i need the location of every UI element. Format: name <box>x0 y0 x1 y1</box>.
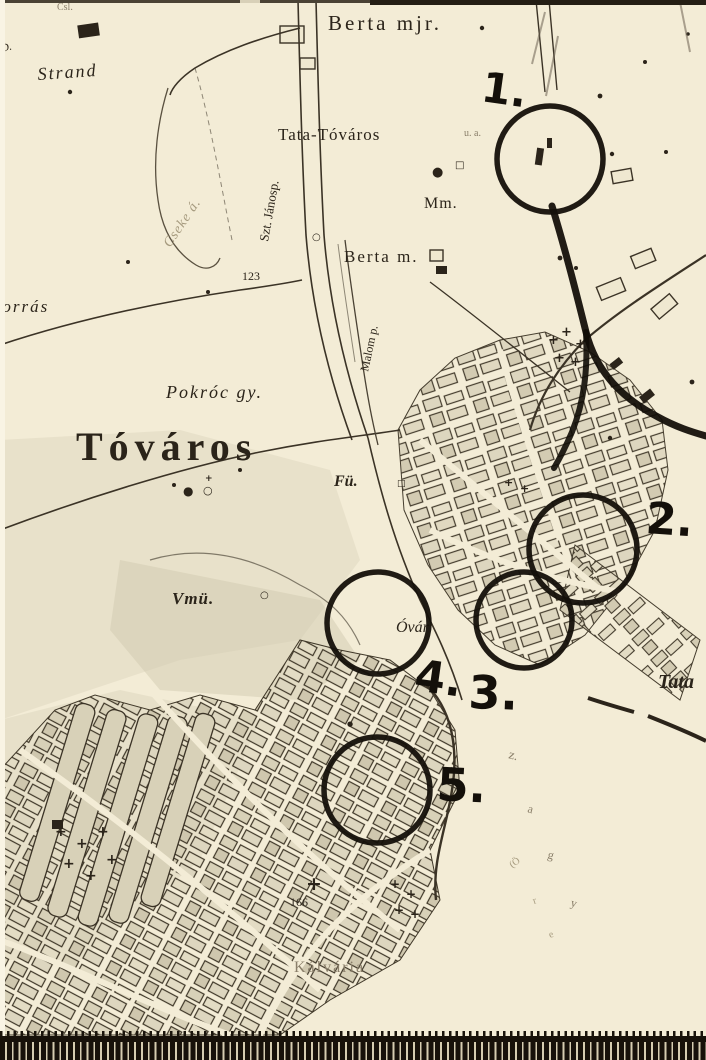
label-tata-tovaros: Tata-Tóváros <box>278 125 380 144</box>
grave-cross-symbol: + <box>63 856 75 872</box>
label-pokroc: Pokróc gy. <box>165 382 263 402</box>
calvary-cross-symbol: + <box>306 873 322 895</box>
marker-number-2: 2. <box>644 493 695 547</box>
marker-circle-1 <box>497 106 603 212</box>
grave-cross-symbol: + <box>390 877 400 891</box>
photo-edge <box>0 0 5 1060</box>
grave-cross-symbol: + <box>76 836 88 852</box>
building-dot-symbol: ● <box>347 720 353 728</box>
photo-scale-ruler <box>0 1036 706 1060</box>
grave-cross-symbol: + <box>570 355 581 370</box>
grave-cross-symbol: + <box>410 907 420 921</box>
photo-top-edge <box>0 0 706 5</box>
marker-number-4: 4. <box>411 650 465 707</box>
label-pu: u. a. <box>464 128 481 139</box>
label-hw-e: e <box>547 929 555 941</box>
label-tovaros: Tóváros <box>76 424 257 469</box>
grave-cross-symbol: + <box>520 482 529 495</box>
grave-cross-symbol: + <box>554 351 565 366</box>
label-hw-a: a <box>526 801 535 816</box>
label-kalvaria: Kálvária <box>294 959 365 976</box>
label-ovar: Óvár <box>396 617 430 636</box>
chapel-ring-symbol: ○ <box>260 590 269 601</box>
grave-cross-symbol: + <box>548 333 559 348</box>
mill-dot-symbol: ● <box>432 165 443 180</box>
label-csl: Csl. <box>57 2 73 13</box>
label-hw-z: z. <box>507 746 520 763</box>
label-hw-oreg: (Ö <box>507 855 523 871</box>
label-forras: Forrás <box>0 297 49 316</box>
grave-cross-symbol: + <box>205 474 213 484</box>
label-berta-m: Berta m. <box>344 247 419 266</box>
label-cseke: Cseke á. <box>161 196 204 250</box>
label-hw-y: y <box>569 895 578 910</box>
grave-cross-symbol: + <box>406 887 416 901</box>
label-hw-g: g <box>546 847 555 862</box>
grave-cross-symbol: + <box>561 325 572 340</box>
grave-cross-symbol: + <box>575 337 586 352</box>
grave-cross-symbol: + <box>106 852 118 868</box>
label-vmu: Vmü. <box>172 589 214 608</box>
grave-cross-symbol: + <box>504 476 513 489</box>
label-szt-janos: Szt. Jánosp. <box>256 179 281 242</box>
marker-number-5: 5. <box>435 757 487 814</box>
grave-cross-symbol: + <box>55 824 67 840</box>
label-e166: 166 <box>290 895 308 909</box>
label-berta-mjr: Berta mjr. <box>328 11 442 35</box>
map-image: Csl.D.StrandBerta mjr.Tata-Tóvárosu. a.M… <box>0 0 706 1060</box>
chapel-ring-symbol: ○ <box>312 232 321 243</box>
building-square-symbol: □ <box>397 479 406 489</box>
label-e123: 123 <box>242 269 260 283</box>
marker-number-1: 1. <box>479 62 531 117</box>
label-tata: Tata <box>658 671 694 693</box>
building-square-symbol: □ <box>455 160 464 171</box>
marker-number-3: 3. <box>468 665 519 721</box>
grave-cross-symbol: + <box>97 824 109 840</box>
grave-cross-symbol: + <box>85 868 97 884</box>
label-mm: Mm. <box>424 195 458 212</box>
building-dot-symbol: ● <box>183 484 193 498</box>
label-strand: Strand <box>37 60 98 84</box>
map-photo: Csl.D.StrandBerta mjr.Tata-Tóvárosu. a.M… <box>0 0 706 1060</box>
chapel-ring-symbol: ○ <box>203 484 213 497</box>
label-hw-r: r <box>531 895 539 907</box>
label-fu: Fü. <box>333 473 358 490</box>
grave-cross-symbol: + <box>394 903 404 917</box>
